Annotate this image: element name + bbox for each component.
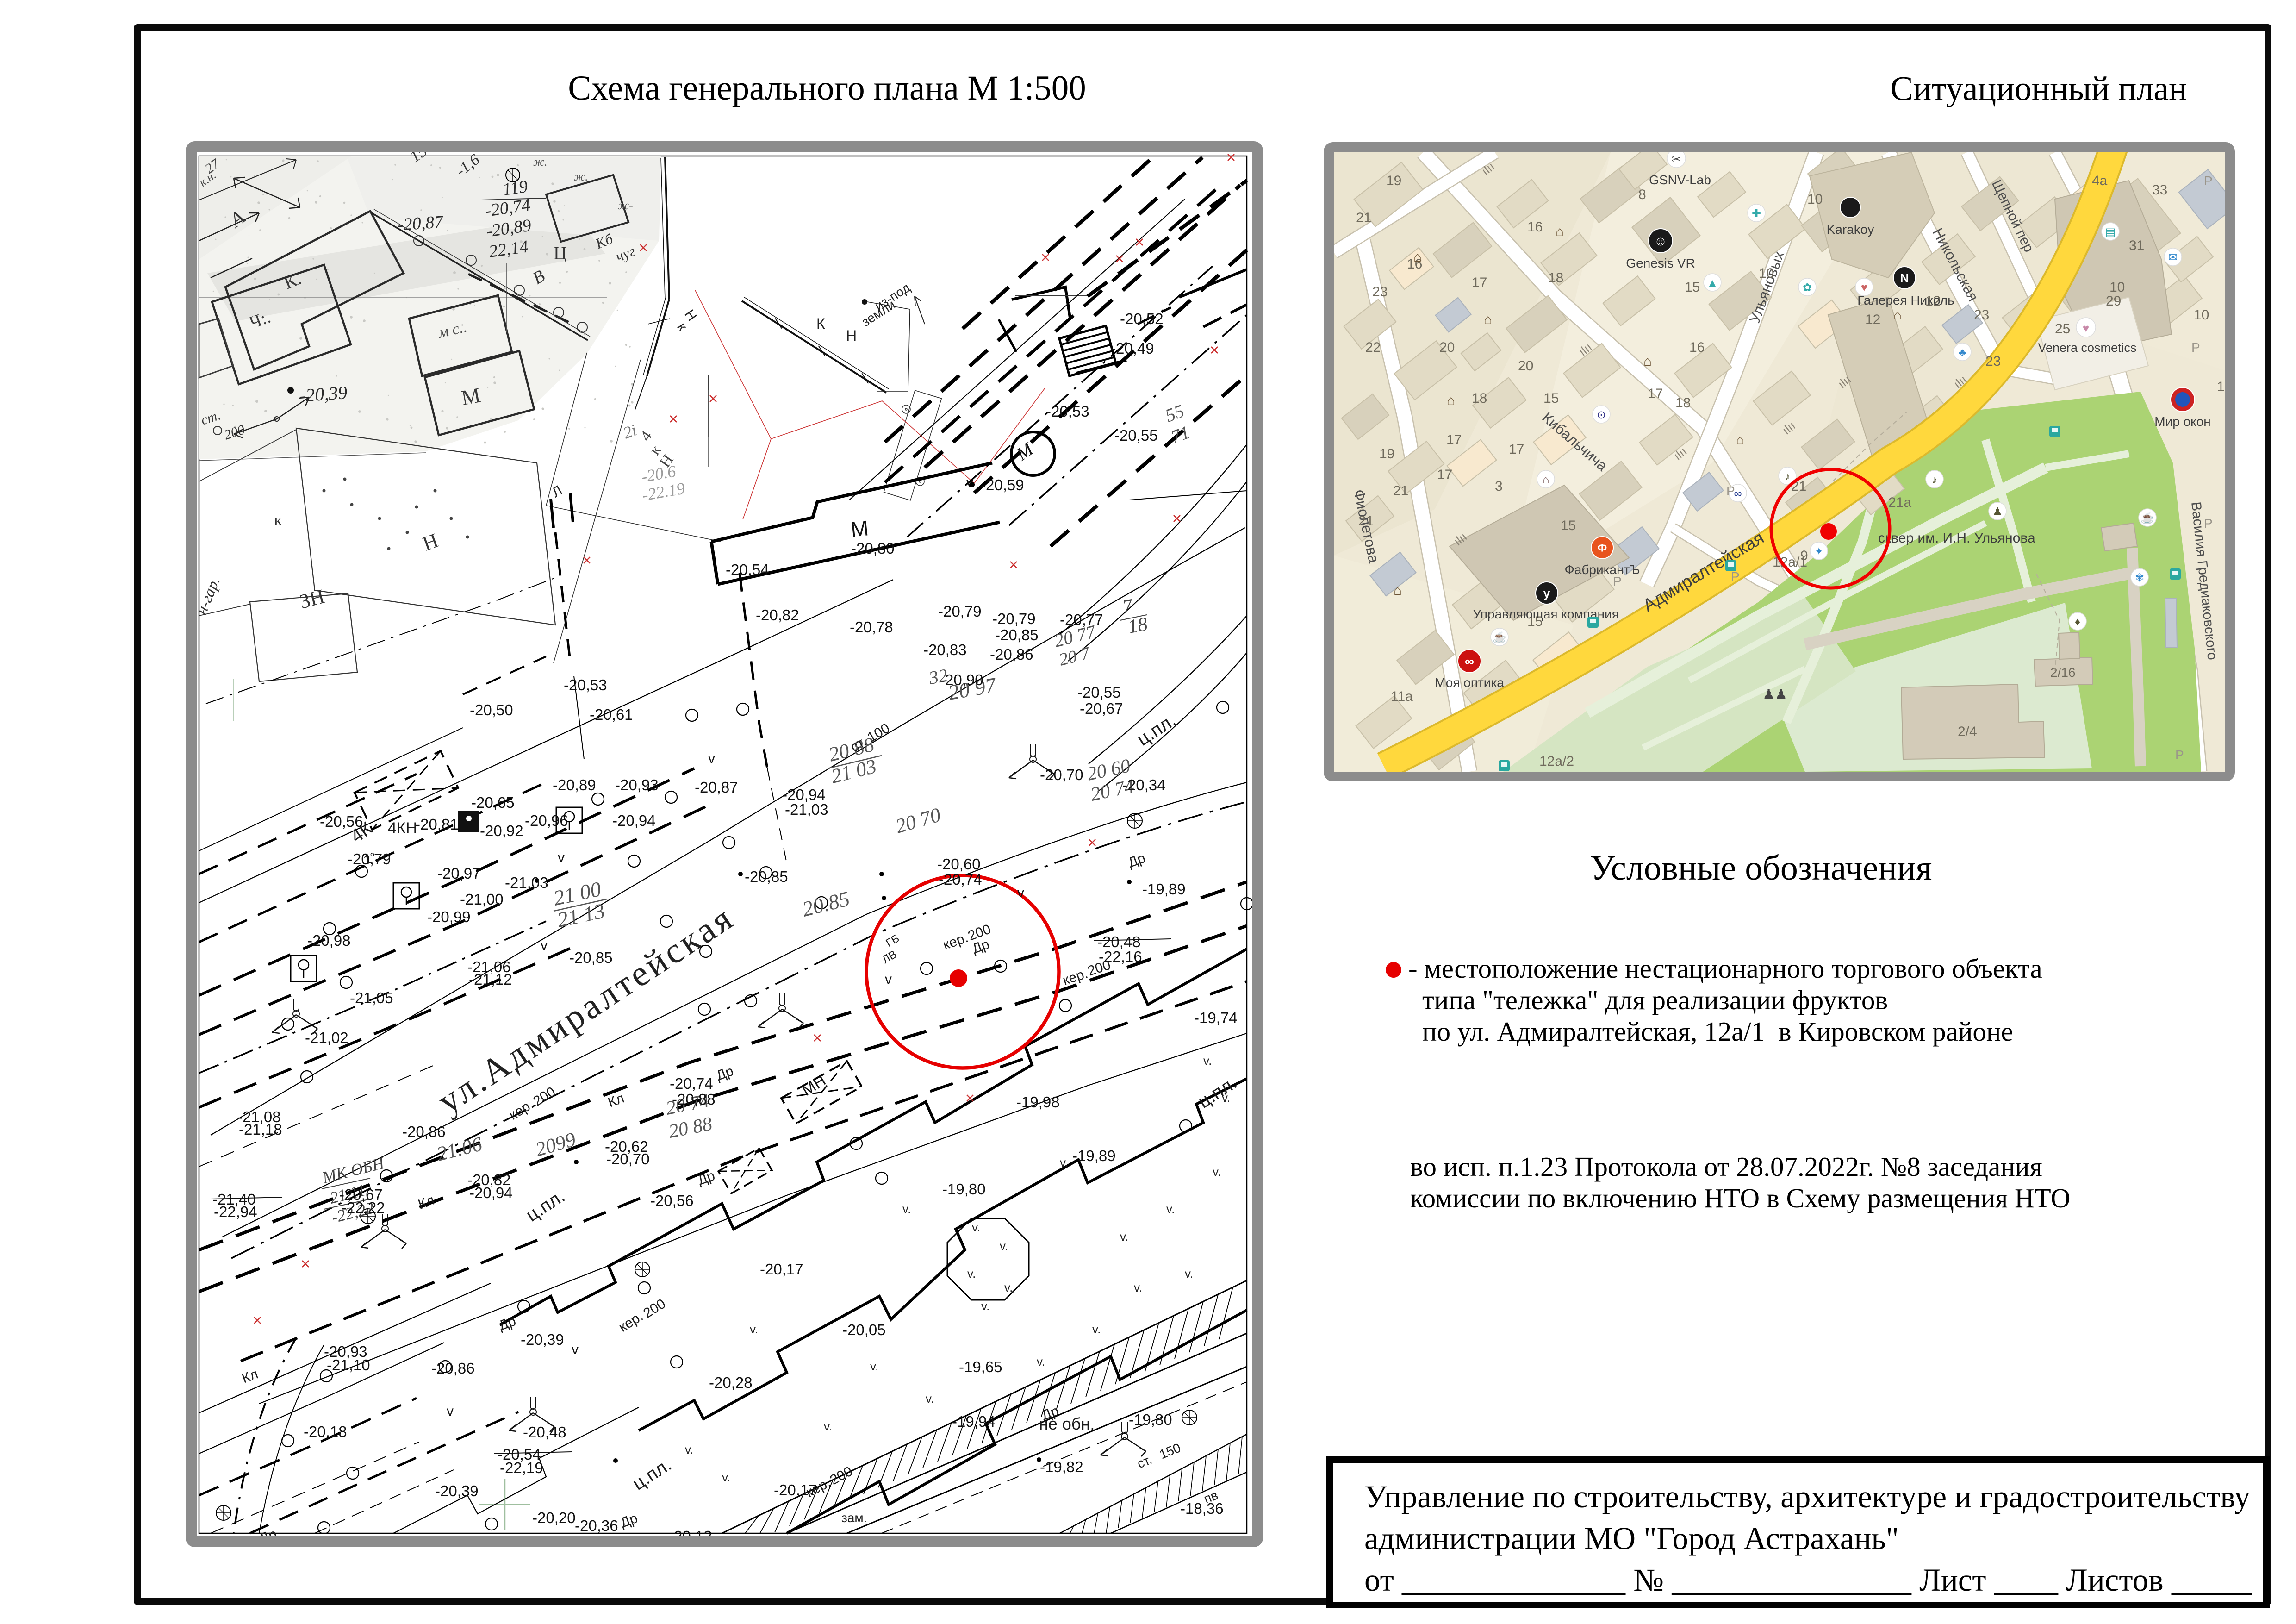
svg-text:17: 17 [1446, 432, 1462, 448]
svg-text:P: P [1726, 484, 1735, 498]
svg-text:⌂: ⌂ [1543, 474, 1549, 486]
svg-text:-20,49: -20,49 [1111, 340, 1154, 357]
svg-text:-20,70: -20,70 [1040, 766, 1083, 783]
svg-text:v: v [558, 850, 565, 865]
svg-text:-19,65: -19,65 [959, 1358, 1002, 1375]
svg-text:v: v [541, 938, 548, 953]
svg-text:⌂: ⌂ [1413, 250, 1422, 265]
svg-text:11а: 11а [1391, 689, 1413, 704]
svg-text:GSNV-Lab: GSNV-Lab [1649, 173, 1711, 187]
svg-text:v.: v. [926, 1392, 934, 1405]
svg-text:-20,87: -20,87 [397, 212, 445, 235]
svg-text:-20,05: -20,05 [842, 1321, 886, 1338]
svg-text:2i: 2i [621, 420, 639, 442]
svg-text:v.: v. [824, 1419, 832, 1433]
svg-text:-20,56: -20,56 [320, 813, 363, 830]
svg-text:-19,80: -19,80 [942, 1181, 986, 1198]
svg-text:12а/2: 12а/2 [1539, 754, 1574, 769]
svg-text:2/4: 2/4 [1958, 724, 1977, 739]
svg-text:✂: ✂ [1672, 153, 1681, 166]
svg-text:150: 150 [1157, 1440, 1183, 1462]
svg-text:-20,97: -20,97 [437, 865, 481, 882]
svg-text:-20,28: -20,28 [709, 1374, 753, 1391]
svg-text:-20,85: -20,85 [569, 949, 613, 966]
svg-text:ц.пл.: ц.пл. [1195, 1073, 1241, 1112]
svg-text:⌂: ⌂ [1556, 224, 1564, 239]
svg-text:-22,94: -22,94 [214, 1203, 257, 1220]
svg-text:-20,61: -20,61 [590, 706, 633, 723]
svg-text:4КН: 4КН [388, 819, 417, 837]
svg-text:P: P [2204, 174, 2213, 188]
svg-text:ГБ: ГБ [884, 932, 902, 949]
svg-text:∞: ∞ [1465, 654, 1474, 668]
svg-text:ЗН: ЗН [297, 585, 327, 613]
svg-text:-20,54: -20,54 [726, 561, 769, 578]
svg-text:v.: v. [1092, 1322, 1101, 1336]
svg-text:200: 200 [641, 1296, 668, 1321]
svg-text:-20,59: -20,59 [981, 476, 1024, 493]
svg-text:-22,19: -22,19 [500, 1459, 543, 1476]
svg-text:сквер им. И.Н. Ульянова: сквер им. И.Н. Ульянова [1878, 531, 2035, 546]
svg-text:20.85: 20.85 [800, 887, 852, 921]
svg-text:-20,87: -20,87 [695, 779, 738, 796]
svg-text:-20,39: -20,39 [435, 1482, 479, 1499]
svg-text:v.: v. [1185, 1267, 1193, 1280]
svg-text:-19,89: -19,89 [1142, 881, 1186, 898]
svg-text:-20,89: -20,89 [553, 776, 596, 793]
svg-text:v.: v. [750, 1322, 758, 1336]
svg-text:P: P [1731, 569, 1740, 584]
svg-text:-20,77: -20,77 [1060, 611, 1103, 628]
svg-text:-20,98: -20,98 [307, 932, 351, 949]
svg-text:Genesis VR: Genesis VR [1626, 256, 1695, 270]
svg-text:-20,53: -20,53 [564, 676, 607, 693]
svg-text:⌂: ⌂ [1447, 393, 1455, 408]
svg-text:у: у [1543, 586, 1550, 600]
svg-text:Н: Н [846, 327, 857, 344]
svg-text:10: 10 [1807, 192, 1823, 207]
svg-text:-20,96: -20,96 [525, 812, 568, 829]
svg-text:-20,86: -20,86 [990, 646, 1033, 663]
svg-text:v.: v. [1120, 1230, 1128, 1243]
svg-text:v: v [708, 751, 715, 766]
svg-text:♪: ♪ [1785, 470, 1790, 483]
svg-text:-20,55: -20,55 [1114, 427, 1158, 444]
svg-text:ц.пл.: ц.пл. [629, 1455, 675, 1494]
svg-text:-20,94: -20,94 [612, 812, 656, 829]
svg-text:ж-: ж- [618, 199, 633, 212]
svg-text:Др: Др [618, 1511, 640, 1531]
svg-text:К: К [816, 315, 825, 332]
svg-text:♪: ♪ [1932, 474, 1937, 486]
svg-text:М: М [850, 516, 870, 542]
svg-text:Др: Др [714, 1063, 735, 1084]
svg-text:P: P [2175, 748, 2184, 762]
svg-text:15: 15 [1561, 518, 1576, 533]
svg-text:v.: v. [967, 1267, 976, 1280]
svg-text:-20,12: -20,12 [669, 1528, 712, 1536]
svg-text:♥: ♥ [2083, 322, 2089, 335]
svg-text:17: 17 [1509, 442, 1524, 457]
svg-text:10: 10 [2109, 280, 2125, 295]
svg-text:-20,67: -20,67 [1080, 700, 1123, 717]
svg-text:9: 9 [1800, 548, 1808, 563]
svg-text:25: 25 [2055, 321, 2070, 337]
svg-text:10: 10 [1759, 266, 1774, 281]
svg-text:кер.: кер. [1061, 966, 1090, 988]
svg-text:21а: 21а [1888, 495, 1911, 510]
svg-text:-20,81: -20,81 [415, 816, 459, 833]
svg-text:29: 29 [2106, 294, 2121, 309]
svg-text:21: 21 [1393, 483, 1408, 499]
svg-text:-20,70: -20,70 [606, 1150, 650, 1168]
svg-text:-20,36: -20,36 [575, 1517, 618, 1534]
svg-text:✉: ✉ [2168, 251, 2178, 264]
svg-text:-21,12: -21,12 [469, 971, 512, 988]
svg-text:17: 17 [1437, 467, 1452, 482]
svg-text:-20,79: -20,79 [348, 850, 391, 868]
svg-text:-20,83: -20,83 [923, 641, 967, 658]
svg-text:P: P [1613, 574, 1622, 588]
svg-text:-20,74: -20,74 [670, 1075, 713, 1092]
svg-text:v.: v. [1166, 1202, 1175, 1216]
svg-text:v.: v. [1037, 1355, 1045, 1368]
svg-text:⌂: ⌂ [1394, 583, 1402, 598]
svg-text:-20,53: -20,53 [1046, 403, 1089, 420]
svg-text:N: N [1900, 271, 1909, 285]
svg-text:Н: Н [420, 529, 442, 555]
svg-text:2099: 2099 [533, 1128, 578, 1161]
svg-text:♦: ♦ [2075, 616, 2080, 628]
svg-text:кер.: кер. [506, 1097, 536, 1123]
svg-text:20 70: 20 70 [893, 803, 943, 837]
svg-text:8: 8 [1638, 187, 1646, 202]
svg-text:20: 20 [1518, 358, 1533, 374]
svg-text:-19,89: -19,89 [1072, 1147, 1116, 1164]
svg-text:-20,85: -20,85 [745, 868, 788, 885]
svg-text:v.: v. [1060, 1156, 1068, 1169]
svg-text:-20,78: -20,78 [850, 618, 893, 636]
svg-text:71: 71 [1168, 421, 1193, 447]
svg-text:-21,05: -21,05 [350, 989, 393, 1006]
svg-text:16: 16 [1689, 340, 1705, 355]
svg-text:-20,60: -20,60 [937, 856, 981, 873]
svg-text:v.: v. [1134, 1280, 1142, 1294]
svg-text:☺: ☺ [1654, 234, 1668, 248]
svg-text:21: 21 [1356, 210, 1371, 225]
svg-text:Др: Др [696, 1168, 717, 1188]
svg-text:ФабрикантЪ: ФабрикантЪ [1565, 562, 1640, 577]
svg-text:-20,17: -20,17 [774, 1481, 817, 1499]
svg-text:-20,79: -20,79 [992, 610, 1036, 627]
svg-text:2/16: 2/16 [2050, 665, 2076, 680]
svg-text:-20,52: -20,52 [1120, 310, 1164, 327]
svg-text:v: v [885, 972, 892, 987]
svg-text:-21,03: -21,03 [785, 801, 828, 818]
svg-text:22: 22 [1365, 340, 1381, 355]
svg-text:▤: ▤ [2105, 226, 2116, 238]
svg-text:v.: v. [1203, 1054, 1212, 1068]
svg-text:♟: ♟ [1992, 506, 2003, 518]
svg-text:-20,79: -20,79 [938, 603, 982, 620]
svg-text:v: v [572, 1342, 579, 1357]
svg-text:-20,86: -20,86 [431, 1360, 475, 1377]
svg-text:23: 23 [1974, 307, 1989, 323]
svg-text:Галерея Николь: Галерея Николь [1857, 293, 1954, 307]
svg-text:∞: ∞ [1734, 487, 1742, 500]
svg-text:15: 15 [1685, 280, 1700, 295]
svg-text:-20,90: -20,90 [940, 671, 983, 688]
svg-text:P: P [2191, 340, 2200, 355]
svg-text:-20,93: -20,93 [615, 776, 659, 793]
svg-text:не обн.: не обн. [1039, 1414, 1095, 1433]
svg-text:⌂: ⌂ [1893, 307, 1902, 323]
svg-text:-20,99: -20,99 [427, 908, 471, 925]
svg-text:-20,17: -20,17 [760, 1261, 803, 1278]
svg-text:Ц: Ц [554, 243, 567, 263]
svg-text:Venera cosmetics: Venera cosmetics [2038, 341, 2136, 355]
svg-text:♥: ♥ [1861, 281, 1867, 294]
svg-text:-20,94: -20,94 [469, 1184, 513, 1201]
svg-text:Др: Др [1126, 850, 1147, 871]
svg-text:зам.: зам. [841, 1511, 867, 1525]
svg-text:Ф: Ф [1598, 542, 1607, 555]
svg-text:-20,56: -20,56 [650, 1192, 694, 1209]
svg-text:19: 19 [1379, 446, 1394, 462]
svg-text:⌂: ⌂ [1484, 312, 1492, 327]
svg-text:Мир окон: Мир окон [2154, 414, 2211, 429]
svg-text:19: 19 [1386, 173, 1401, 188]
svg-text:v.: v. [870, 1359, 878, 1373]
svg-text:-19,98: -19,98 [1016, 1093, 1060, 1111]
svg-text:-20,80: -20,80 [851, 540, 895, 557]
svg-text:-21,10: -21,10 [327, 1356, 370, 1374]
svg-text:-21,03: -21,03 [505, 874, 548, 891]
svg-text:200: 200 [828, 1464, 855, 1488]
svg-text:ц.пл.: ц.пл. [523, 1186, 569, 1226]
svg-text:-20,39: -20,39 [299, 382, 348, 406]
svg-text:ц.пл.: ц.пл. [1133, 710, 1180, 750]
svg-text:v.: v. [972, 1220, 980, 1234]
svg-text:17: 17 [1472, 275, 1487, 290]
svg-text:⊙: ⊙ [1597, 409, 1606, 421]
svg-text:17: 17 [1648, 386, 1663, 401]
svg-text:18: 18 [1675, 395, 1691, 411]
svg-text:✚: ✚ [1752, 207, 1761, 220]
svg-text:12: 12 [1865, 312, 1880, 327]
svg-text:18: 18 [1548, 270, 1563, 286]
svg-text:♟♟: ♟♟ [1762, 687, 1787, 702]
svg-text:-22,16: -22,16 [1099, 948, 1142, 965]
svg-text:-20,39: -20,39 [521, 1331, 564, 1348]
svg-text:-21,18: -21,18 [239, 1121, 282, 1138]
svg-text:18: 18 [1472, 391, 1487, 406]
svg-text:v: v [447, 1404, 454, 1419]
svg-text:к: к [274, 511, 282, 529]
svg-text:ж.: ж. [533, 155, 548, 169]
svg-text:-22,22: -22,22 [342, 1199, 385, 1216]
svg-text:-20,88: -20,88 [672, 1091, 716, 1108]
svg-text:-20,55: -20,55 [1077, 684, 1121, 701]
svg-text:21: 21 [1358, 513, 1374, 529]
svg-text:Кл: Кл [240, 1367, 260, 1387]
svg-text:-20,34: -20,34 [1122, 776, 1166, 793]
svg-text:-18,36: -18,36 [1180, 1500, 1224, 1517]
svg-text:-20,85: -20,85 [995, 626, 1039, 643]
svg-text:v.: v. [685, 1443, 693, 1456]
svg-text:-20,74: -20,74 [939, 871, 982, 888]
svg-text:Моя оптика: Моя оптика [1435, 675, 1504, 690]
svg-text:v.: v. [1004, 1280, 1013, 1294]
svg-text:✿: ✿ [1803, 281, 1812, 294]
svg-text:16: 16 [1527, 219, 1543, 235]
svg-text:23: 23 [1372, 284, 1388, 300]
svg-text:⌂: ⌂ [1736, 432, 1744, 448]
svg-text:v.: v. [1000, 1239, 1008, 1253]
svg-text:-19,94: -19,94 [952, 1413, 996, 1430]
svg-text:3: 3 [1495, 479, 1503, 494]
svg-text:ст.: ст. [1135, 1452, 1154, 1471]
svg-text:33: 33 [2152, 182, 2167, 198]
svg-text:v.: v. [981, 1299, 989, 1313]
svg-text:✾: ✾ [2135, 572, 2144, 584]
svg-text:-21,02: -21,02 [305, 1029, 348, 1046]
svg-text:-19,82: -19,82 [1040, 1458, 1083, 1475]
svg-text:v.: v. [722, 1470, 730, 1484]
svg-text:▲: ▲ [1707, 277, 1718, 289]
svg-text:-20,65: -20,65 [471, 794, 515, 811]
svg-text:-20,20: -20,20 [532, 1509, 576, 1526]
svg-text:20: 20 [1439, 340, 1455, 355]
svg-text:-19,74: -19,74 [1194, 1009, 1238, 1026]
svg-text:☕: ☕ [1493, 631, 1506, 644]
svg-text:15: 15 [2217, 379, 2225, 394]
svg-text:-21,00: -21,00 [460, 891, 504, 908]
svg-text:18: 18 [1126, 613, 1149, 638]
svg-text:31: 31 [2129, 238, 2144, 253]
svg-text:кер.: кер. [616, 1309, 646, 1335]
svg-text:v: v [1017, 885, 1024, 900]
svg-text:♣: ♣ [1959, 346, 1966, 359]
svg-text:-20,86: -20,86 [402, 1123, 446, 1140]
svg-text:-19,80: -19,80 [1129, 1411, 1172, 1428]
svg-text:-20,18: -20,18 [304, 1423, 347, 1440]
svg-text:10: 10 [2194, 307, 2209, 323]
svg-text:ЛВ: ЛВ [880, 948, 899, 966]
svg-text:☕: ☕ [2140, 511, 2154, 525]
svg-text:кер.: кер. [941, 930, 970, 953]
svg-text:v.: v. [902, 1202, 911, 1216]
svg-text:-20,50: -20,50 [470, 701, 513, 718]
svg-text:-20,48: -20,48 [523, 1424, 566, 1441]
svg-text:⌂: ⌂ [1643, 354, 1652, 369]
svg-text:P: P [2204, 516, 2213, 531]
svg-text:✦: ✦ [1814, 545, 1823, 558]
svg-text:ж.: ж. [574, 170, 588, 183]
svg-text:v.: v. [1213, 1165, 1221, 1179]
svg-text:23: 23 [1985, 354, 2001, 369]
svg-text:4а: 4а [2092, 173, 2108, 188]
svg-text:15: 15 [1543, 391, 1559, 406]
svg-text:М: М [460, 383, 482, 410]
svg-text:-20,92: -20,92 [480, 822, 523, 839]
svg-text:-20,82: -20,82 [756, 606, 799, 624]
svg-text:Karakoy: Karakoy [1827, 222, 1874, 237]
svg-text:Кл: Кл [416, 1193, 436, 1212]
svg-text:4: 4 [637, 428, 655, 444]
